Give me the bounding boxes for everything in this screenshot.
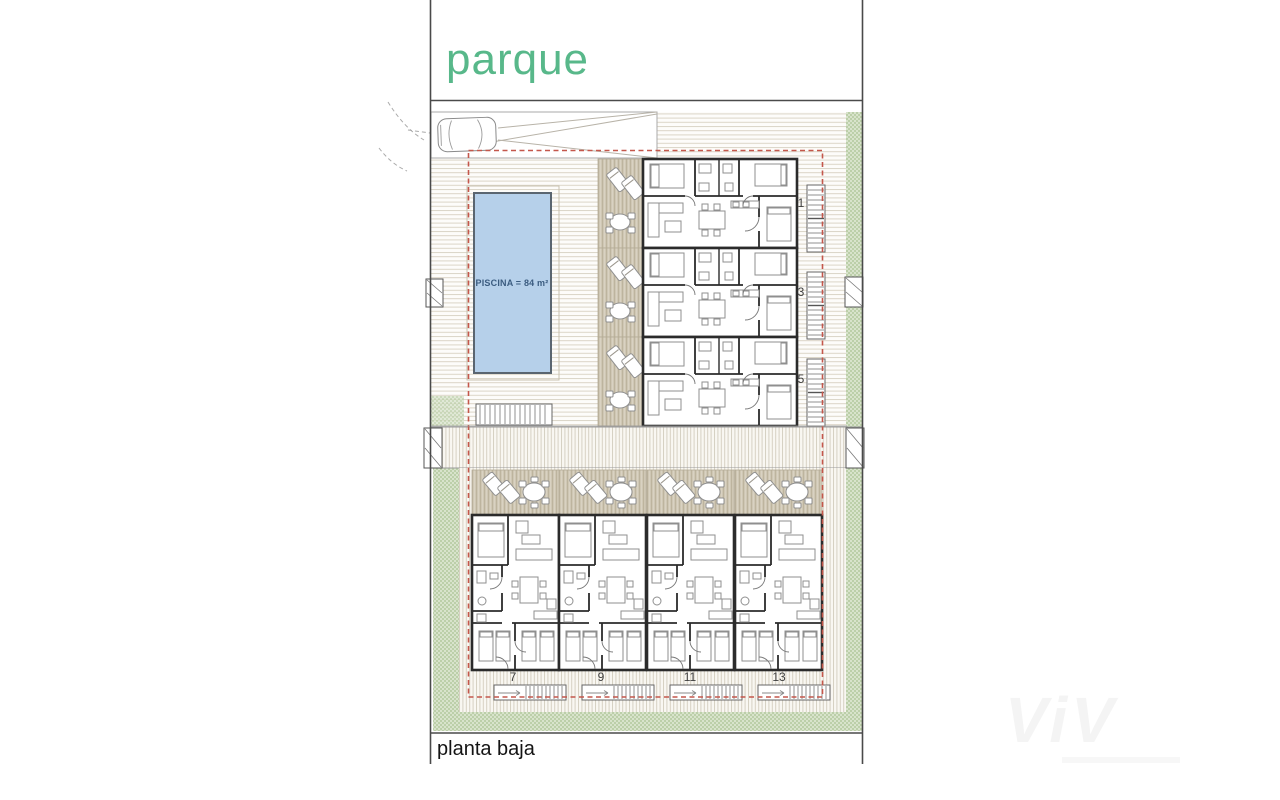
gate-icon — [424, 428, 442, 468]
terrace — [647, 470, 734, 515]
unit-number: 9 — [598, 670, 605, 684]
floor-plan: PISCINA = 84 m² 1 3 5 — [0, 0, 1280, 800]
deck-stairs — [476, 404, 552, 425]
upper-building — [643, 159, 797, 426]
terrace — [598, 337, 645, 426]
terrace — [735, 470, 822, 515]
floor-plan-label: planta baja — [437, 738, 536, 760]
gate-icon — [426, 279, 443, 307]
gate-icon — [845, 277, 863, 307]
apartment-unit — [559, 515, 646, 670]
svg-text:ViV: ViV — [1005, 684, 1119, 756]
gate-icon — [846, 428, 864, 468]
terrace — [559, 470, 646, 515]
unit-number: 13 — [772, 670, 786, 684]
hedge-bottom — [433, 712, 862, 731]
watermark: ViV — [1005, 684, 1180, 763]
walkway — [431, 427, 862, 468]
unit-number: 3 — [798, 285, 805, 299]
apartment-unit — [643, 337, 797, 426]
terrace — [598, 248, 645, 337]
lower-building — [472, 515, 822, 670]
apartment-unit — [647, 515, 734, 670]
apartment-unit — [472, 515, 559, 670]
unit-number: 11 — [684, 670, 697, 684]
planting-patch — [431, 396, 464, 426]
hedge-right — [846, 112, 862, 731]
pool-label: PISCINA = 84 m² — [476, 278, 549, 288]
apartment-unit — [643, 248, 797, 337]
unit-number: 1 — [798, 196, 805, 210]
hedge-left — [433, 468, 459, 713]
unit-number: 5 — [798, 372, 805, 386]
terrace — [598, 159, 645, 248]
stairs — [670, 685, 742, 700]
floor-plan-page: PISCINA = 84 m² 1 3 5 — [0, 0, 1280, 800]
unit-number: 7 — [510, 670, 517, 684]
park-label: parque — [446, 35, 589, 84]
apartment-unit — [735, 515, 822, 670]
apartment-unit — [643, 159, 797, 248]
terrace — [472, 470, 559, 515]
pool: PISCINA = 84 m² — [467, 186, 559, 380]
approach-arcs — [379, 102, 430, 171]
car-icon — [437, 117, 496, 152]
